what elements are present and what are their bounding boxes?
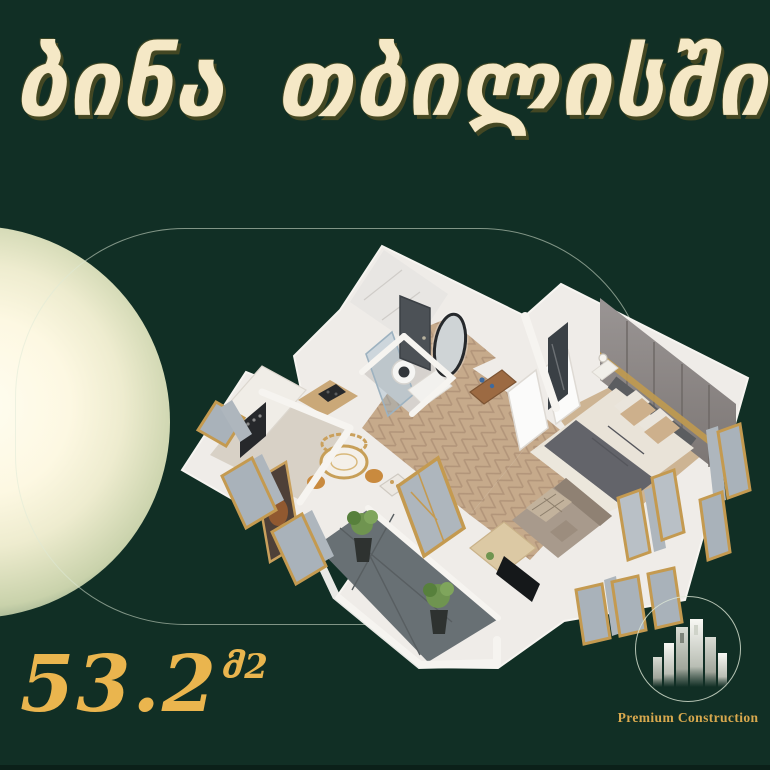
title-word-1: ბინა [15,30,225,137]
poster: ბინა თბილისში [0,0,770,770]
bedside-lamp [599,354,607,362]
bottom-edge-strip [0,765,770,770]
area-label: 53.2მ2 [20,642,264,728]
decor-plant-small [486,552,494,560]
logo: Premium Construction [608,596,768,726]
title-word-2: თბილისში [277,30,769,137]
area-unit: მ2 [222,647,268,687]
page-title: ბინა თბილისში [0,22,770,146]
logo-text: Premium Construction [608,710,768,726]
logo-ring [635,596,741,702]
city-buildings-icon [647,613,729,687]
area-value: 53.2 [20,639,218,730]
entrance-door [400,296,430,370]
dining-chair [365,469,383,483]
